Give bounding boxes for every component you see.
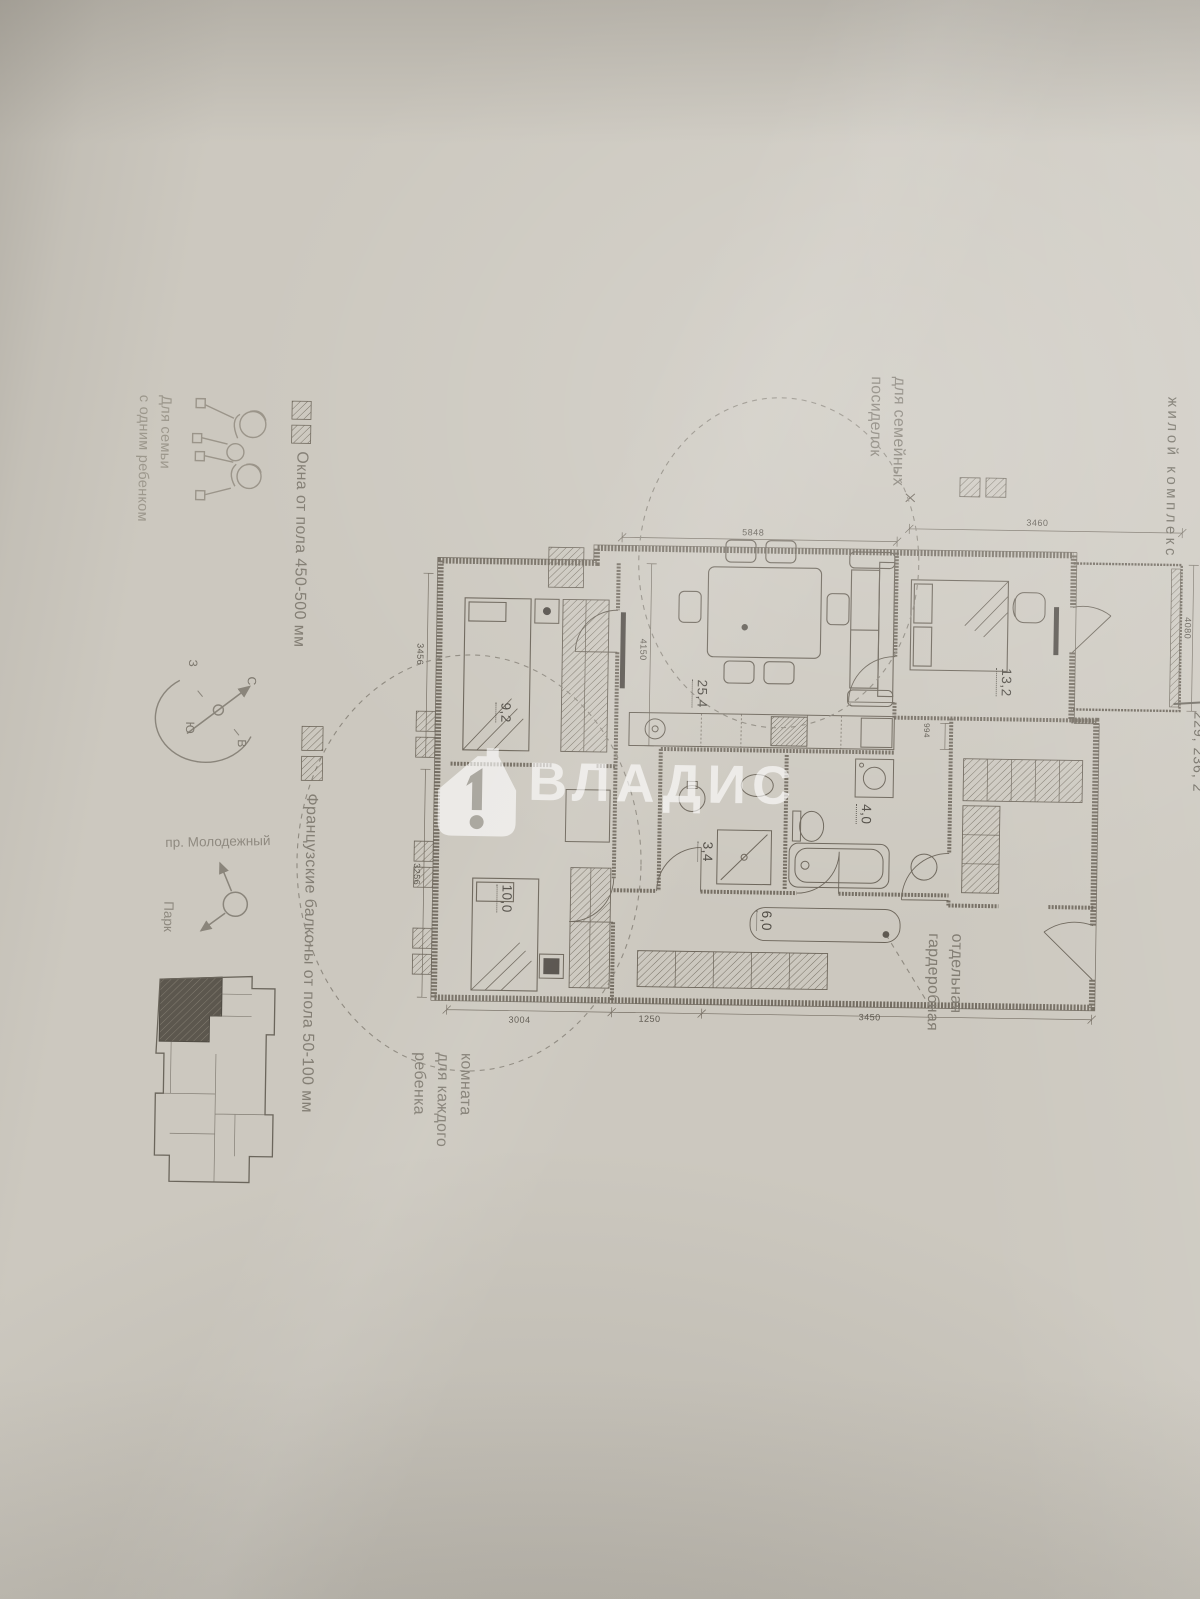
callout-children-line1: комната bbox=[453, 1053, 478, 1148]
room-label-bedroom-10: 10,0 bbox=[496, 884, 514, 913]
dim-top-living: 5848 bbox=[742, 527, 764, 537]
callout-children-room: комната для каждого ребенка bbox=[407, 1052, 478, 1148]
dim-bottom-right: 3450 bbox=[859, 1012, 881, 1022]
compass bbox=[155, 680, 252, 763]
room-label-bedroom-13: 13,2 bbox=[996, 668, 1014, 697]
watermark-house-icon bbox=[437, 747, 516, 836]
target-audience-line2: с одним ребенком bbox=[130, 395, 154, 522]
pillar bbox=[548, 547, 584, 588]
compass-east: В bbox=[235, 739, 249, 747]
floor-plan bbox=[294, 390, 1200, 1082]
room-label-bathroom-4: 4,0 bbox=[856, 804, 874, 825]
dim-bottom-middle: 1250 bbox=[638, 1014, 660, 1024]
tv bbox=[620, 612, 626, 688]
callout-children-line3: ребенка bbox=[407, 1052, 432, 1147]
callout-family-line2: посиделок bbox=[863, 376, 888, 486]
kitchen-sink bbox=[645, 719, 665, 739]
target-audience-line1: Для семьи bbox=[152, 395, 176, 522]
street-label: пр. Молодежный bbox=[165, 833, 270, 850]
bed-single bbox=[463, 598, 531, 751]
washing-machine bbox=[855, 759, 894, 798]
dim-left-upper: 3456 bbox=[415, 643, 425, 665]
key-plan bbox=[154, 975, 275, 1183]
toilet bbox=[792, 811, 823, 841]
location-marker bbox=[201, 863, 248, 932]
tv bbox=[1053, 607, 1059, 655]
photographed-floorplan-page: Не жилой комплекс 229, 236, 2 Для семьи … bbox=[0, 0, 1200, 1599]
nightstand bbox=[535, 599, 559, 623]
callout-family-line1: для семейных bbox=[886, 376, 911, 486]
nightstand bbox=[539, 954, 563, 978]
dining-table-set bbox=[678, 539, 850, 685]
callout-wardrobe-line2: гардеробная bbox=[920, 933, 945, 1031]
park-label: Парк bbox=[161, 901, 176, 932]
shower bbox=[717, 830, 772, 885]
room-label-bathroom-3: 3,4 bbox=[697, 842, 715, 863]
left-wall-windows bbox=[412, 711, 435, 974]
compass-west: З bbox=[186, 659, 200, 666]
callout-leaders bbox=[294, 390, 943, 1078]
sink bbox=[911, 854, 937, 880]
fridge bbox=[861, 718, 892, 747]
dim-left-lower: 3256 bbox=[412, 863, 422, 885]
room-label-hallway: 6,0 bbox=[756, 910, 774, 931]
family-icon bbox=[192, 399, 267, 501]
target-audience-label: Для семьи с одним ребенком bbox=[130, 395, 175, 523]
bed-double bbox=[910, 580, 1008, 672]
watermark-brand: ВЛАДИС bbox=[528, 751, 798, 817]
dim-wardrobe-small: 994 bbox=[922, 723, 931, 738]
dim-living-inner: 4150 bbox=[638, 639, 648, 661]
legend-windows-label: Окна от пола 450-500 мм bbox=[289, 451, 310, 647]
key-plan-highlight bbox=[159, 976, 222, 1042]
callout-wardrobe-line1: отдельная bbox=[944, 933, 969, 1031]
children-rooms-circle bbox=[294, 652, 644, 1073]
dim-top-bedroom: 3460 bbox=[1026, 518, 1048, 528]
x-marker bbox=[906, 494, 915, 502]
apartment-numbers-fragment: 229, 236, 2 bbox=[1190, 711, 1200, 792]
callout-children-line2: для каждого bbox=[430, 1052, 455, 1147]
wardrobe-leader-dot bbox=[882, 931, 889, 938]
sofa bbox=[848, 552, 895, 707]
stove bbox=[771, 717, 807, 747]
compass-south: Ю bbox=[183, 721, 197, 733]
brand-logo-fragment: Не bbox=[1189, 339, 1200, 410]
french-balcony-icon bbox=[301, 726, 323, 780]
room-label-living: 25,4 bbox=[691, 679, 709, 708]
window-icon bbox=[292, 401, 312, 443]
window-icon bbox=[960, 478, 1006, 498]
armchair bbox=[1013, 592, 1045, 622]
dim-bottom-left: 3004 bbox=[508, 1015, 530, 1025]
brand-subtitle: жилой комплекс bbox=[1162, 397, 1182, 559]
dim-right-balcony: 4080 bbox=[1183, 617, 1193, 639]
callout-wardrobe: отдельная гардеробная bbox=[920, 933, 968, 1032]
page-content: Не жилой комплекс 229, 236, 2 Для семьи … bbox=[0, 0, 1200, 1599]
compass-north: С bbox=[245, 676, 259, 685]
room-label-bedroom-9: 9,2 bbox=[495, 702, 513, 723]
balcony-window-band bbox=[1170, 569, 1181, 707]
kitchen-counter bbox=[629, 712, 894, 749]
callout-family-gatherings: для семейных посиделок bbox=[863, 376, 911, 486]
wardrobe-room bbox=[962, 759, 1083, 895]
